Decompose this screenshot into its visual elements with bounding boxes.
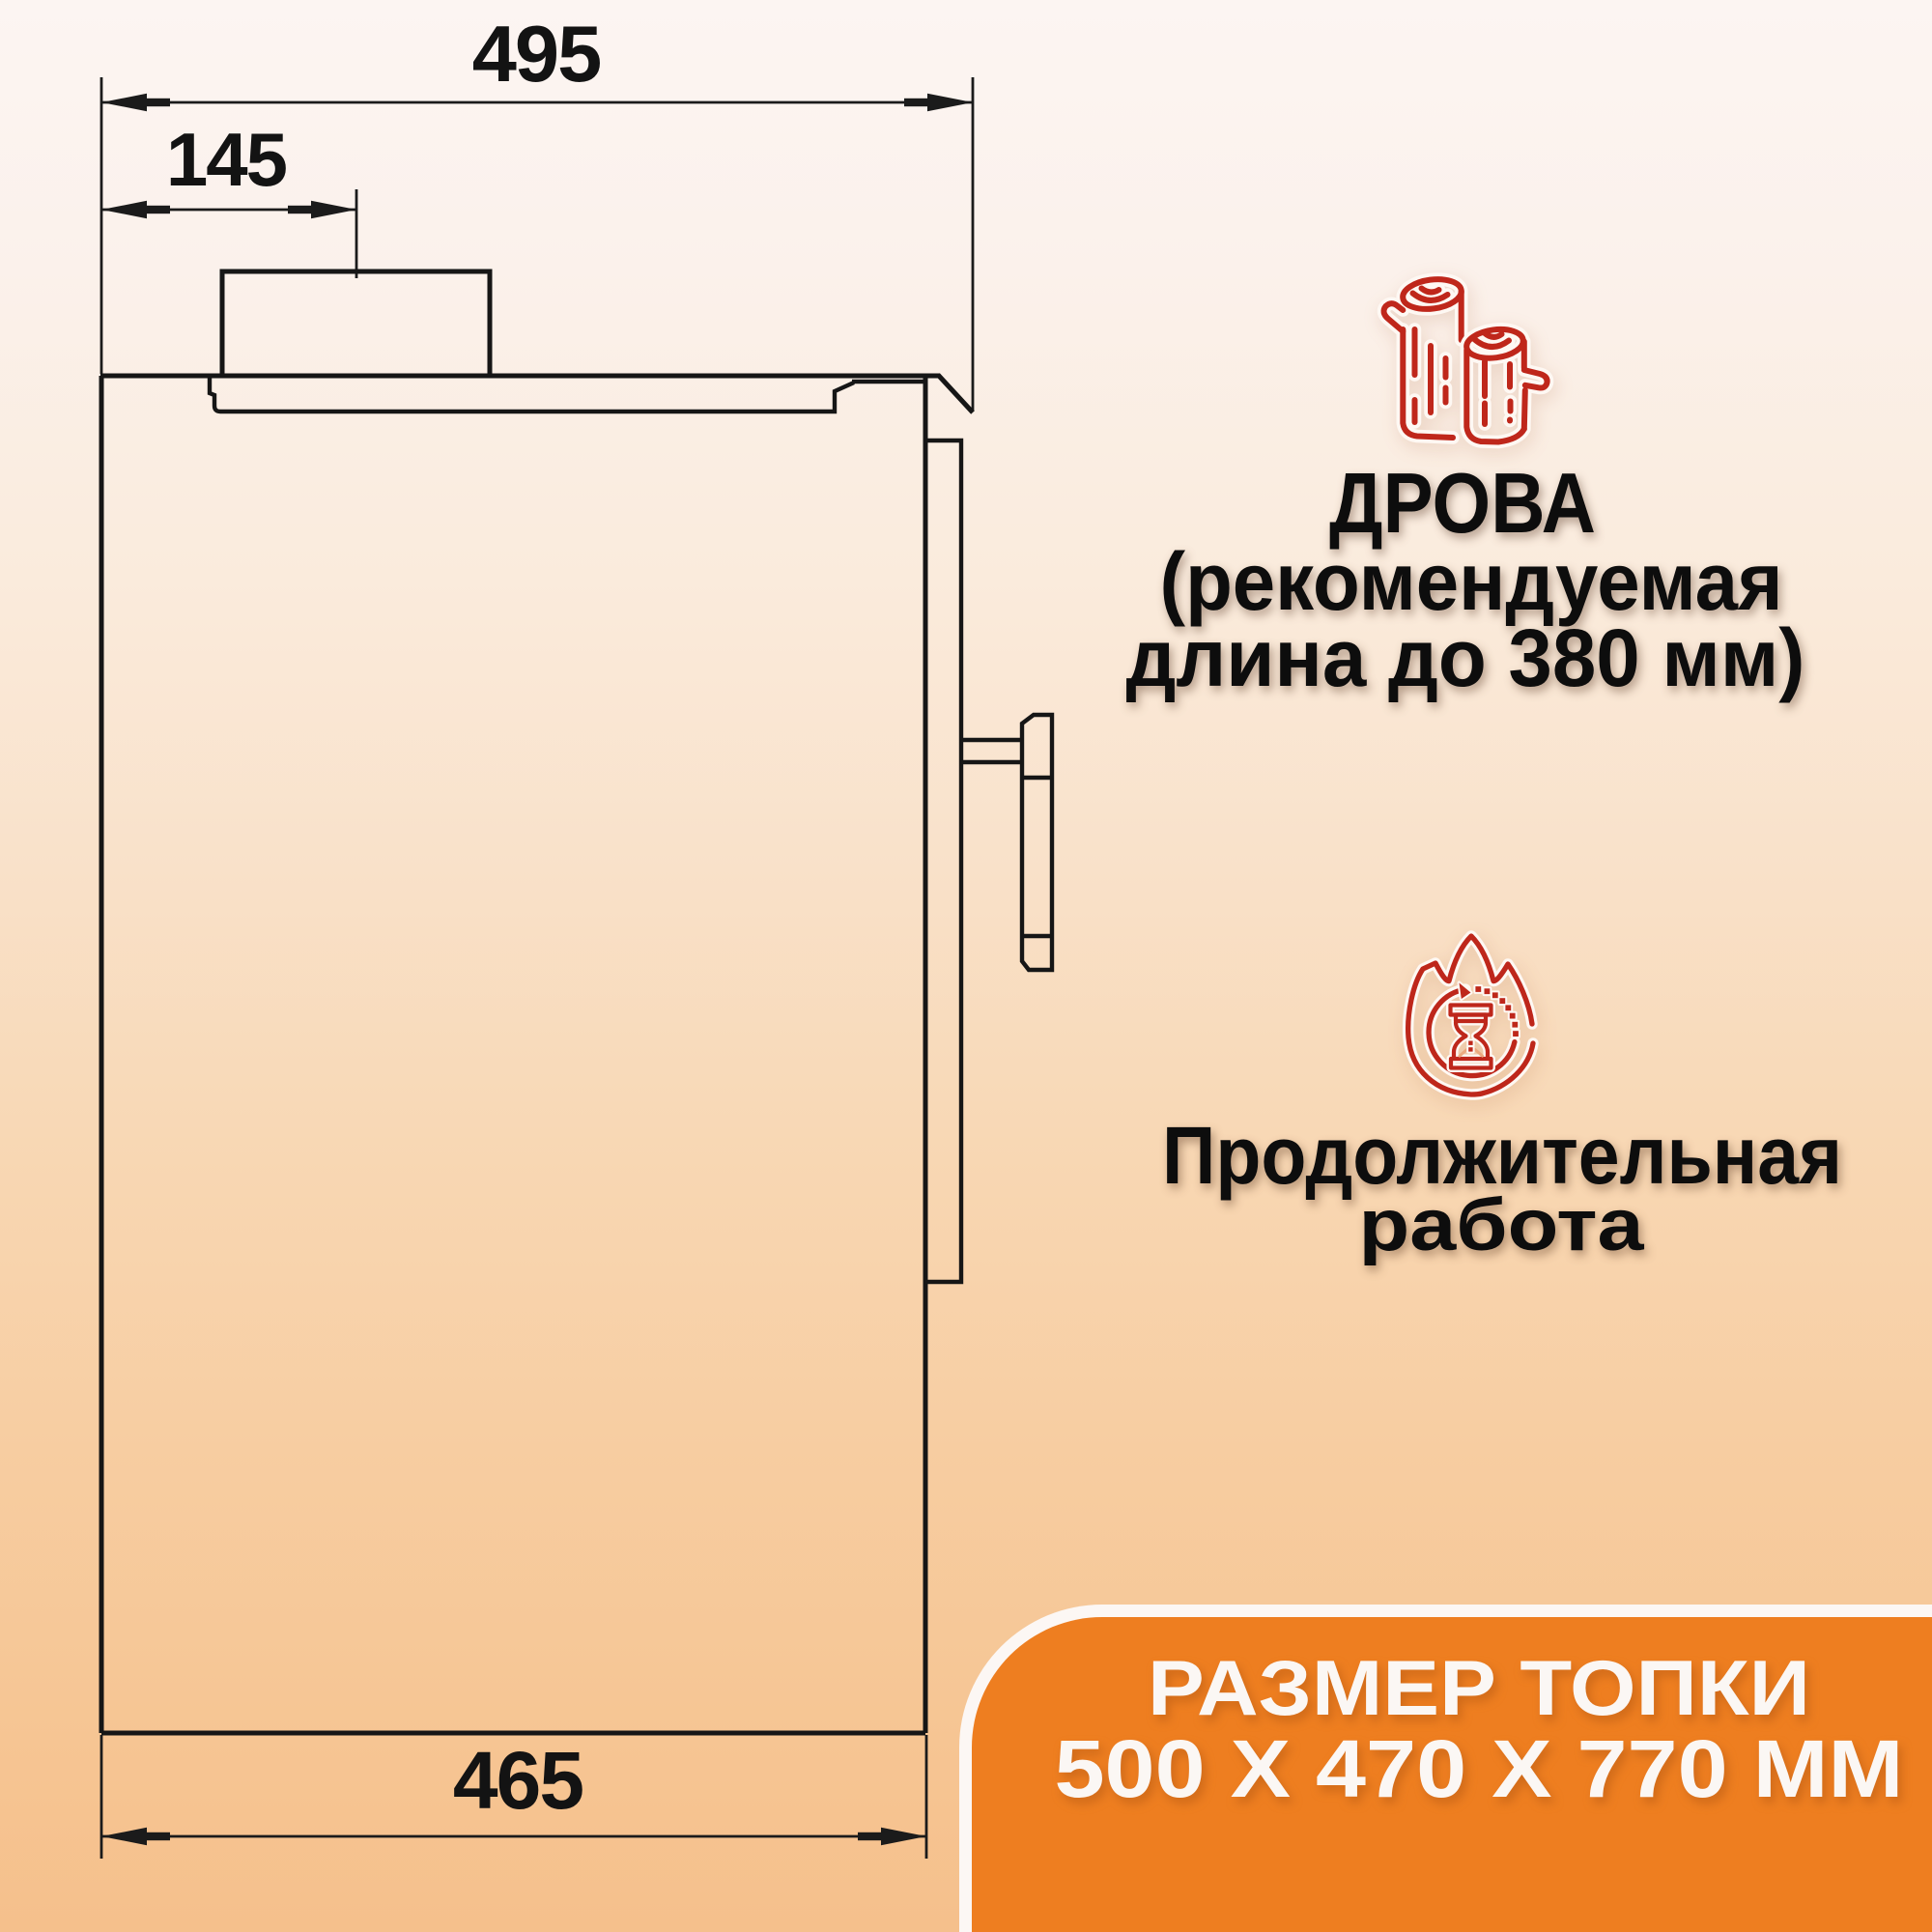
svg-text:500 Х 470 Х 770 ММ: 500 Х 470 Х 770 ММ <box>1055 1723 1904 1814</box>
svg-text:465: 465 <box>453 1735 582 1826</box>
svg-text:495: 495 <box>472 9 600 99</box>
svg-text:работа: работа <box>1359 1184 1645 1266</box>
svg-text:145: 145 <box>166 117 287 202</box>
svg-text:длина до 380 мм): длина до 380 мм) <box>1126 612 1805 703</box>
svg-text:РАЗМЕР ТОПКИ: РАЗМЕР ТОПКИ <box>1148 1645 1810 1732</box>
